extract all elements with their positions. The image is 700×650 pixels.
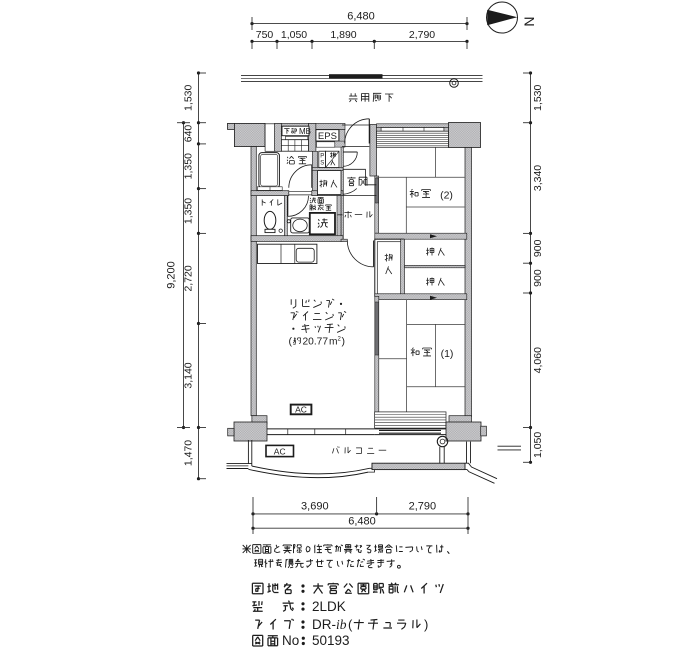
svg-text:(1): (1): [441, 348, 454, 360]
svg-text:1,470: 1,470: [183, 440, 195, 466]
svg-text:P: P: [320, 154, 324, 160]
svg-text:900: 900: [532, 239, 544, 257]
svg-text:6,480: 6,480: [348, 516, 376, 528]
svg-text:4,060: 4,060: [532, 347, 544, 373]
svg-text:AC: AC: [274, 446, 286, 456]
svg-text:1,050: 1,050: [532, 432, 544, 458]
svg-text:2LDK: 2LDK: [312, 599, 346, 614]
svg-text:1,050: 1,050: [281, 29, 307, 41]
svg-text:900: 900: [532, 269, 544, 287]
svg-text:3,340: 3,340: [532, 165, 544, 191]
svg-text:3,140: 3,140: [183, 362, 195, 388]
svg-text:m: m: [329, 336, 338, 347]
svg-text:1,530: 1,530: [183, 85, 195, 111]
svg-text:50193: 50193: [312, 633, 350, 648]
svg-text:1,530: 1,530: [532, 85, 544, 111]
svg-text:640: 640: [183, 125, 195, 143]
svg-text:1,350: 1,350: [183, 198, 195, 224]
svg-text:No: No: [282, 633, 299, 648]
svg-text:1,890: 1,890: [330, 29, 356, 41]
svg-text:20.77: 20.77: [303, 336, 329, 347]
svg-text:3,690: 3,690: [301, 500, 329, 512]
svg-text:(2): (2): [440, 189, 453, 201]
svg-text:N: N: [522, 16, 538, 26]
svg-text:9,200: 9,200: [166, 261, 178, 289]
svg-text:(: (: [289, 336, 293, 348]
svg-text:ib: ib: [336, 617, 347, 632]
svg-text:MB: MB: [299, 127, 311, 136]
svg-text:): ): [342, 336, 346, 348]
svg-text:750: 750: [256, 29, 274, 41]
svg-text:EPS: EPS: [318, 131, 337, 142]
svg-text:2,720: 2,720: [183, 265, 195, 291]
svg-text:S: S: [320, 161, 324, 167]
svg-text:2,790: 2,790: [409, 500, 437, 512]
svg-text:): ): [424, 617, 428, 632]
svg-text:1,350: 1,350: [183, 153, 195, 179]
svg-text:(: (: [348, 617, 353, 632]
svg-text:AC: AC: [295, 404, 307, 414]
svg-text:2,790: 2,790: [409, 29, 435, 41]
svg-text:DR-: DR-: [312, 617, 336, 632]
svg-text:6,480: 6,480: [347, 11, 375, 23]
